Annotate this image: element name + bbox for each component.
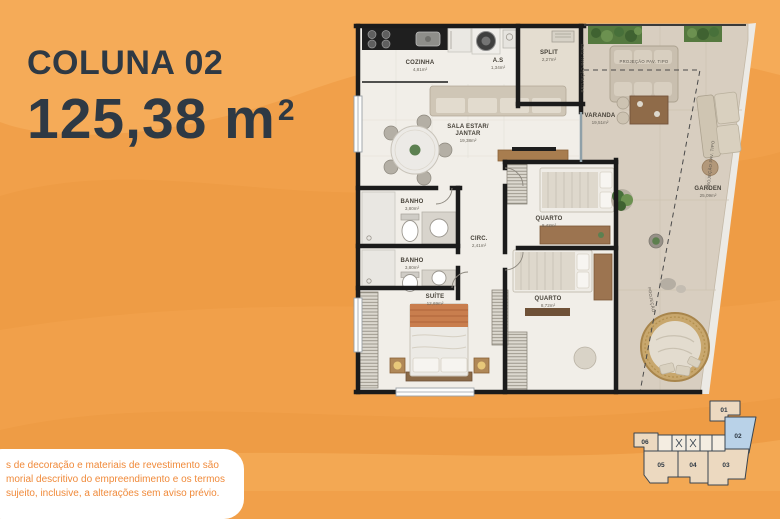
wardrobe-icon: [507, 332, 527, 390]
unit-area-value: 125,38 m: [27, 87, 276, 151]
key-plan-label-04: 04: [689, 462, 697, 469]
disclaimer-line-3: sujeito, inclusive, a alterações sem avi…: [6, 487, 234, 501]
svg-text:2,27m²: 2,27m²: [542, 57, 557, 62]
unit-number: 02: [184, 44, 223, 82]
armchair-icon: [574, 347, 596, 369]
laundry-tank-icon: [503, 30, 516, 48]
disclaimer-box: s de decoração e materiais de revestimen…: [0, 449, 244, 519]
room-label-banho-2: BANHO: [401, 258, 424, 264]
key-plan-label-05: 05: [657, 462, 665, 469]
wardrobe-icon: [507, 164, 527, 204]
svg-text:25,09m²: 25,09m²: [700, 193, 717, 198]
lamp-icon: [394, 362, 402, 370]
svg-text:1,34m²: 1,34m²: [491, 65, 506, 70]
tv-icon: [512, 147, 556, 151]
sink-icon: [430, 219, 448, 237]
shower-icon: [362, 192, 395, 244]
room-label-suite: SUÍTE: [426, 292, 445, 300]
svg-text:12,69m²: 12,69m²: [427, 301, 444, 306]
svg-text:19,51m²: 19,51m²: [592, 120, 609, 125]
unit-title: COLUNA02: [27, 46, 296, 82]
nightstand-icon: [594, 254, 612, 300]
room-label-split: SPLIT: [540, 50, 558, 56]
varanda-sofa: [610, 46, 678, 102]
disclaimer-line-1: s de decoração e materiais de revestimen…: [6, 459, 234, 473]
room-label-varanda: VARANDA: [585, 113, 616, 119]
room-label-quarto-1: QUARTO: [535, 216, 562, 222]
lamp-icon: [478, 362, 486, 370]
key-plan: 01 02 03 04 05 06: [632, 397, 778, 490]
split-condenser-icon: [552, 31, 574, 42]
svg-text:8,72m²: 8,72m²: [541, 303, 556, 308]
svg-text:3,80m²: 3,80m²: [405, 265, 420, 270]
floor-plan: COZINHA 4,81m² A.S 1,34m² SPLIT 2,27m² S…: [350, 10, 780, 404]
key-plan-label-01: 01: [720, 407, 728, 414]
svg-text:19,38m²: 19,38m²: [460, 138, 477, 143]
room-label-cozinha: COZINHA: [406, 60, 435, 66]
bench-icon: [525, 308, 570, 316]
room-label-quarto-2: QUARTO: [534, 296, 561, 302]
projecao-horizontal-label: PROJEÇÃO PAV. TIPO: [620, 59, 669, 64]
toilet-icon: [402, 221, 418, 242]
sofa: [430, 86, 566, 116]
sink-icon: [432, 271, 446, 285]
svg-text:2,41m²: 2,41m²: [472, 243, 487, 248]
svg-text:8,43m²: 8,43m²: [542, 223, 557, 228]
key-plan-core: [658, 435, 725, 451]
svg-text:3,80m²: 3,80m²: [405, 206, 420, 211]
unit-title-block: COLUNA02 125,38 m2: [27, 46, 296, 152]
kitchen-counter: [362, 28, 471, 52]
key-plan-label-06: 06: [641, 439, 649, 446]
unit-area: 125,38 m2: [27, 86, 296, 152]
svg-text:JANTAR: JANTAR: [455, 131, 481, 137]
unit-area-exponent: 2: [278, 94, 296, 127]
key-plan-label-03: 03: [722, 462, 730, 469]
room-label-as: A.S: [493, 58, 504, 64]
plant-icon: [410, 145, 421, 156]
room-label-circ: CIRC.: [470, 236, 487, 242]
room-label-banho-1: BANHO: [401, 199, 424, 205]
garden-nest-chair: [641, 313, 709, 381]
svg-text:4,81m²: 4,81m²: [413, 67, 428, 72]
projecao-vertical-label: PROJEÇÃO PAV. TIPO: [580, 43, 585, 92]
disclaimer-line-2: morial descritivo do empreendimento e os…: [6, 473, 234, 487]
room-label-sala: SALA ESTAR/: [447, 124, 489, 130]
project-label: COLUNA: [27, 44, 175, 82]
wardrobe-icon: [360, 292, 378, 388]
key-plan-label-02: 02: [734, 433, 742, 440]
